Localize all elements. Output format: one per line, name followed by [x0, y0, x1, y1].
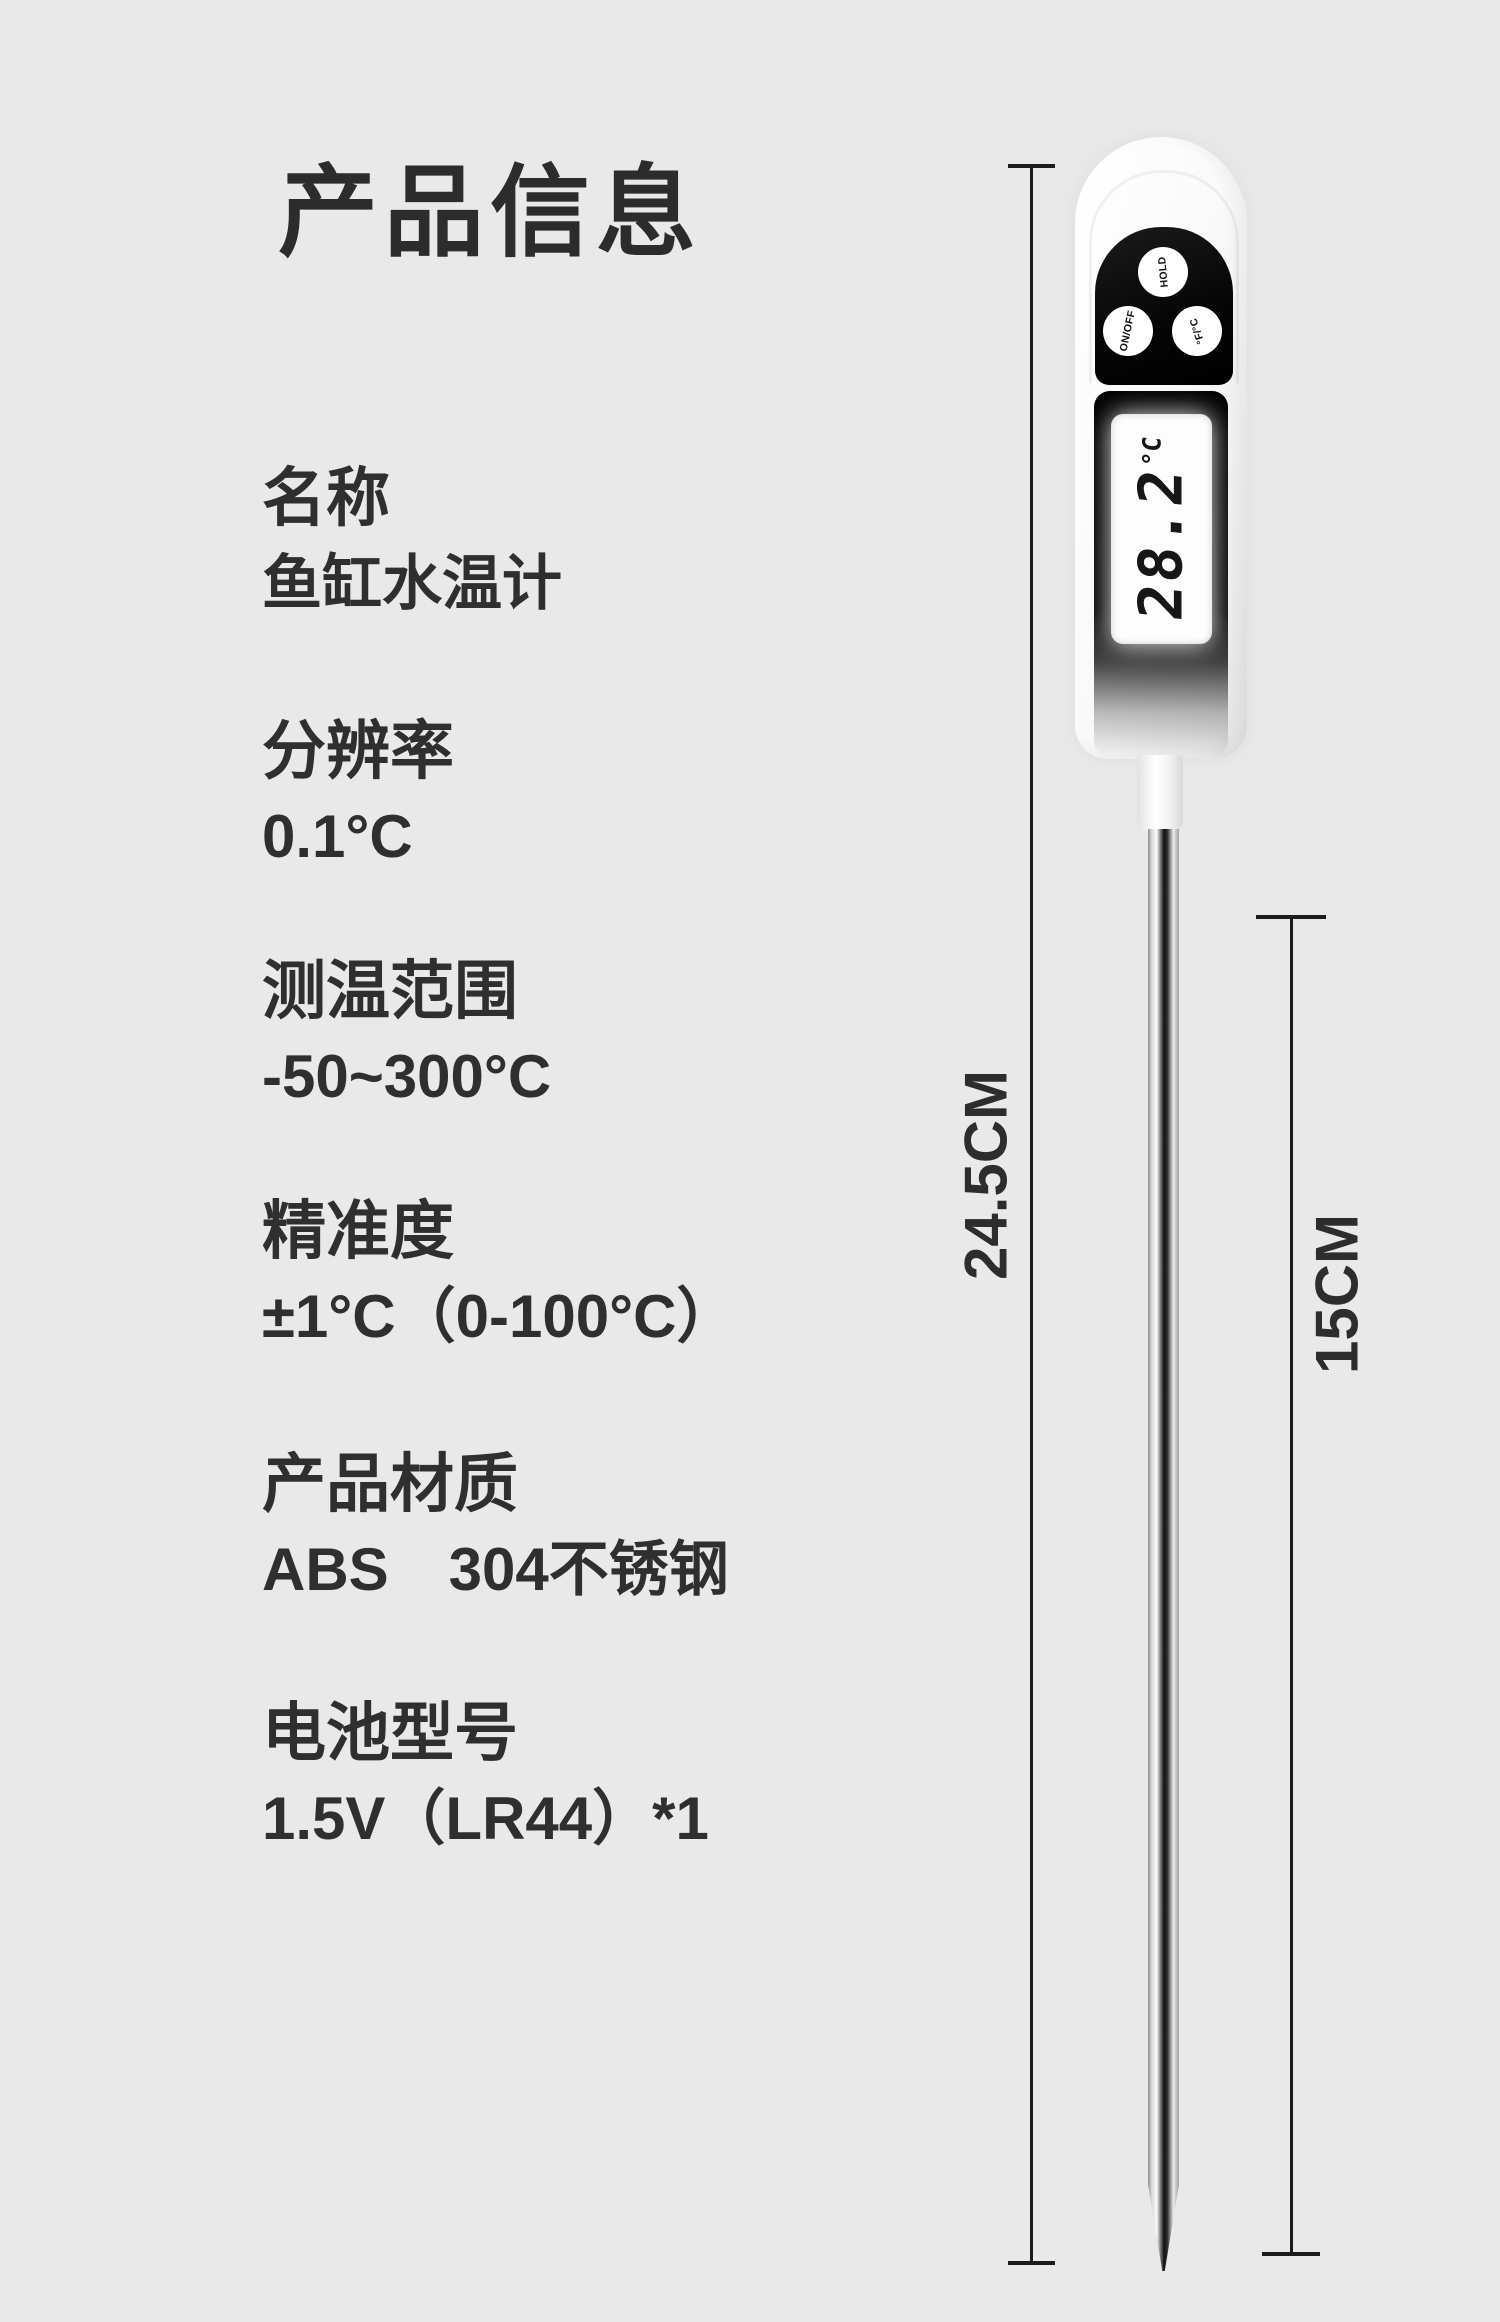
hold-button: HOLD — [1138, 247, 1188, 297]
spec-value: 1.5V（LR44）*1 — [262, 1789, 709, 1849]
lcd-display: 28.2°C — [1111, 414, 1212, 644]
on-off-button: ON/OFF — [1103, 306, 1153, 356]
spec-label: 产品材质 — [262, 1452, 729, 1516]
probe — [1148, 829, 1179, 2271]
lcd-unit: °C — [1138, 435, 1167, 468]
spec-list: 名称 鱼缸水温计 分辨率 0.1°C 测温范围 -50~300°C 精准度 ±1… — [0, 0, 1500, 2322]
dimension-label-probe: 15CM — [1303, 1214, 1372, 1374]
fahrenheit-celsius-button: °F/°C — [1172, 306, 1222, 356]
spec-value: 0.1°C — [262, 807, 454, 867]
spec-measuring-range: 测温范围 -50~300°C — [262, 959, 551, 1107]
spec-accuracy: 精准度 ±1°C（0-100°C） — [262, 1199, 736, 1347]
dimension-line-overall — [1030, 166, 1033, 2265]
spec-value: ±1°C（0-100°C） — [262, 1287, 736, 1347]
spec-resolution: 分辨率 0.1°C — [262, 719, 454, 867]
spec-name: 名称 鱼缸水温计 — [262, 466, 562, 614]
spec-label: 名称 — [262, 466, 562, 530]
spec-value: ABS 304不锈钢 — [262, 1540, 729, 1600]
lcd-temperature-value: 28.2 — [1127, 464, 1197, 624]
hold-button-label: HOLD — [1156, 256, 1171, 288]
spec-label: 分辨率 — [262, 719, 454, 783]
spec-label: 电池型号 — [262, 1701, 709, 1765]
probe-collar — [1137, 755, 1183, 831]
lcd-reading: 28.2°C — [1127, 434, 1197, 624]
dimension-label-overall: 24.5CM — [952, 1070, 1021, 1280]
spec-value: -50~300°C — [262, 1047, 551, 1107]
spec-label: 精准度 — [262, 1199, 736, 1263]
dimension-line-probe — [1290, 917, 1293, 2256]
dimension-cap — [1262, 2252, 1320, 2256]
dimension-cap — [1008, 164, 1055, 168]
spec-label: 测温范围 — [262, 959, 551, 1023]
product-info-page: 产品信息 名称 鱼缸水温计 分辨率 0.1°C 测温范围 -50~300°C 精… — [0, 0, 1500, 2322]
spec-material: 产品材质 ABS 304不锈钢 — [262, 1452, 729, 1600]
on-off-button-label: ON/OFF — [1118, 309, 1138, 352]
spec-value: 鱼缸水温计 — [262, 554, 562, 614]
dimension-cap — [1008, 2261, 1055, 2265]
dimension-cap — [1256, 915, 1326, 919]
spec-battery: 电池型号 1.5V（LR44）*1 — [262, 1701, 709, 1849]
fahrenheit-celsius-button-label: °F/°C — [1187, 316, 1207, 345]
